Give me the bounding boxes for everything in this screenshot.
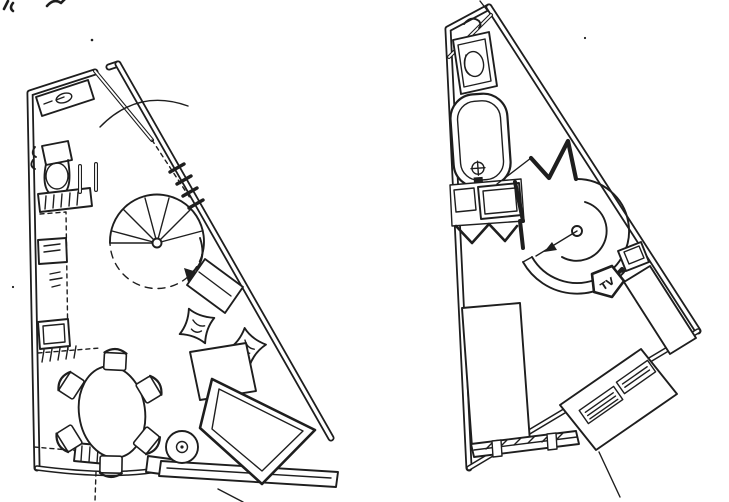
sketch-svg: TV xyxy=(0,0,729,502)
lower-floor-plan xyxy=(30,64,338,502)
stair-opening-zigzag xyxy=(456,224,517,243)
washbasin-counter xyxy=(38,188,92,212)
toilet xyxy=(31,141,72,197)
bathtub xyxy=(449,92,512,189)
floor-cushion-1 xyxy=(179,308,215,344)
handwriting-marks xyxy=(4,0,67,11)
desk-with-items xyxy=(560,349,677,497)
stair-direction-arrow xyxy=(536,231,577,256)
upper-floor-plan: TV xyxy=(448,1,698,497)
round-stool xyxy=(166,431,198,463)
scanned-floor-plan-page: TV xyxy=(0,0,729,502)
kitchen-sink xyxy=(38,319,100,362)
bed xyxy=(462,303,530,447)
dining-chair-top xyxy=(104,348,127,370)
exterior-walls xyxy=(30,64,331,473)
entry-door xyxy=(95,71,190,198)
